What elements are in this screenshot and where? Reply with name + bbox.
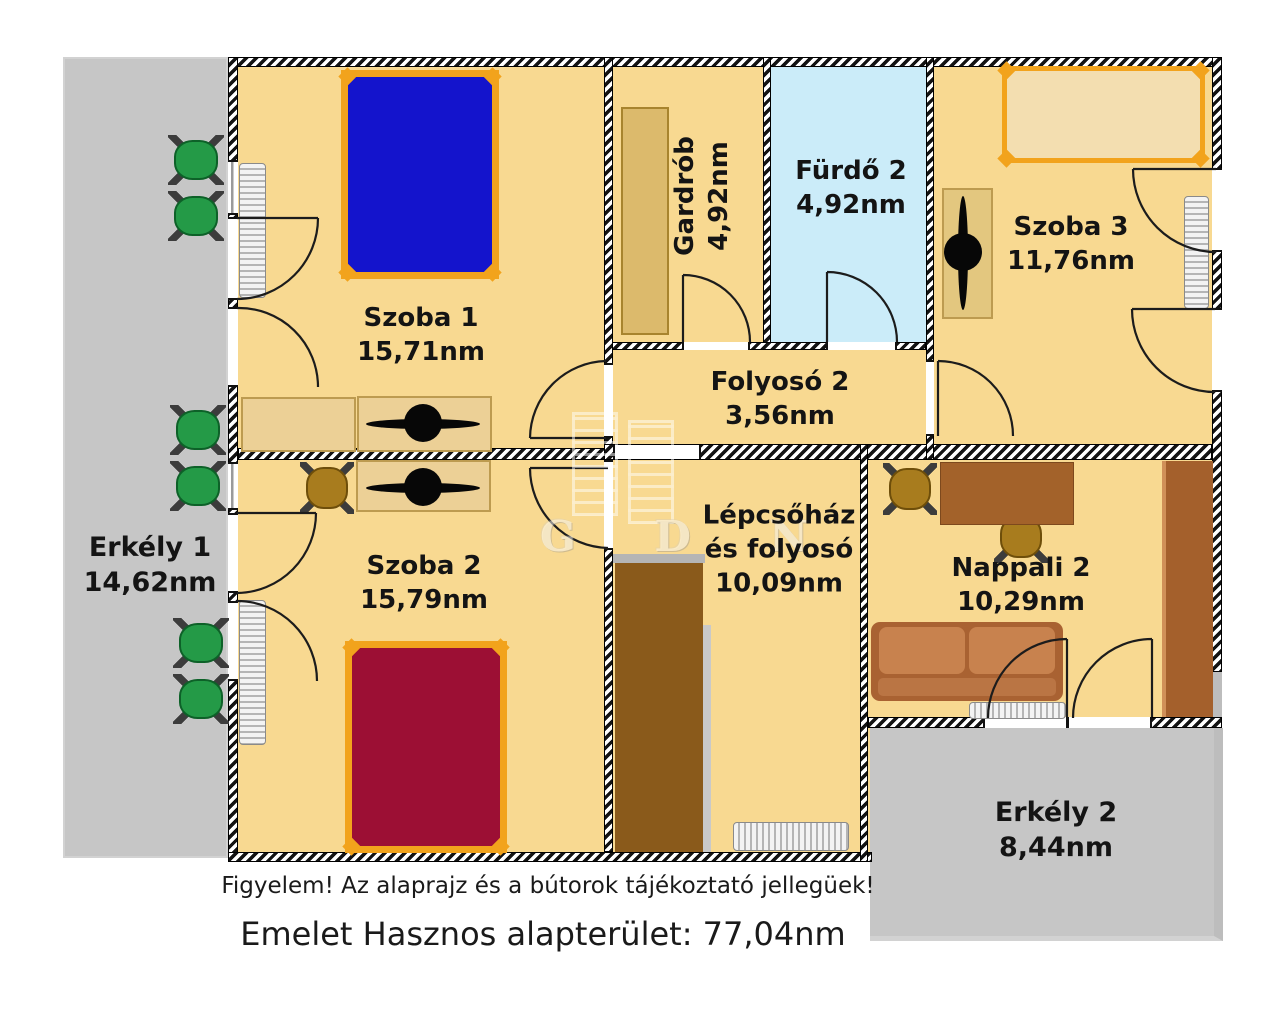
wardrobe-cabinet-gardrob [621,107,669,335]
room-label-lepcsohaz: Lépcsőház és folyosó 10,09nm [703,499,856,600]
room-area: 4,92nm [795,189,906,223]
desk-szoba1-left [241,397,356,452]
wall-lepcso-nappali [860,444,868,862]
balcony-chair-icon-5 [173,618,229,668]
room-name: Nappali 2 [951,552,1090,586]
balcony-chair-icon-2 [168,191,224,241]
room-label-erkely1: Erkély 1 14,62nm [84,530,217,600]
door-opening-szoba2-balcony-a [228,513,238,593]
chair-icon-nappali-a [883,463,937,515]
bed-szoba3 [1002,66,1205,163]
passage-folyoso-lepcso [613,445,701,459]
sofa-seat-front [878,678,1056,696]
wall-gardrob-furdo [763,57,771,350]
door-opening-gardrob [682,342,750,350]
staircase [615,562,703,852]
room-area: 11,76nm [1007,245,1135,279]
room-area: 3,56nm [711,400,850,434]
room-name: Erkély 1 [84,530,217,565]
sofa [871,622,1063,701]
room-name: Szoba 1 [357,302,485,336]
room-area: 10,09nm [703,567,856,601]
room-label-szoba1: Szoba 1 15,71nm [357,302,485,370]
door-opening-szoba3 [926,360,934,436]
room-label-folyoso2: Folyosó 2 3,56nm [711,366,850,434]
room-name: Fürdő 2 [795,155,906,189]
balcony-chair-icon-4 [170,461,226,511]
door-opening-szoba2-balcony-b [228,601,238,681]
room-label-szoba2: Szoba 2 15,79nm [360,550,488,618]
room-label-gardrob: Gardrób 4,92nm [669,136,737,256]
door-opening-szoba1-balcony-b [228,307,238,387]
room-label-szoba3: Szoba 3 11,76nm [1007,211,1135,279]
room-name: Szoba 2 [360,550,488,584]
window-szoba2 [228,462,238,510]
room-area: 8,44nm [995,830,1117,865]
total-area-text: Emelet Hasznos alapterület: 77,04nm [240,915,845,953]
room-name-2: és folyosó [703,533,856,567]
radiator-icon-szoba2 [239,600,266,745]
office-chair-seat-szoba3 [944,233,982,271]
room-area: 15,79nm [360,584,488,618]
balcony-chair-icon-6 [173,674,229,724]
room-name: Erkély 2 [995,795,1117,830]
window-szoba1 [228,160,238,215]
door-opening-szoba1-folyoso [604,363,613,438]
radiator-icon-szoba1 [239,163,266,298]
radiator-icon-nappali [969,702,1066,719]
room-area: 4,92nm [703,136,737,256]
wall-outer-bottom [228,852,872,862]
door-opening-szoba2-lepcso [604,460,613,550]
room-label-furdo2: Fürdő 2 4,92nm [795,155,906,223]
bed-szoba1 [341,70,499,279]
radiator-icon-lepcsohaz [733,822,849,851]
room-area: 10,29nm [951,586,1090,620]
radiator-icon-szoba3 [1184,196,1209,309]
office-chair-seat-szoba1 [404,404,442,442]
room-area: 15,71nm [357,336,485,370]
room-name: Gardrób [669,136,703,256]
door-opening-szoba1-balcony-a [228,217,238,300]
room-label-erkely2: Erkély 2 8,44nm [995,795,1117,865]
disclaimer-text: Figyelem! Az alaprajz és a bútorok tájék… [221,873,874,899]
office-chair-seat-szoba2 [404,468,442,506]
chair-icon-szoba2 [300,462,354,514]
room-label-nappali2: Nappali 2 10,29nm [951,552,1090,620]
desk-nappali [940,462,1074,525]
sofa-cushion-right [969,627,1055,674]
room-name: Lépcsőház [703,499,856,533]
room-area: 14,62nm [84,565,217,600]
balcony-chair-icon-1 [168,135,224,185]
staircase-top-edge [613,554,705,563]
door-opening-furdo [826,342,897,350]
staircase-right-edge [703,625,711,852]
bed-szoba2 [345,641,507,853]
room-name: Szoba 3 [1007,211,1135,245]
floor-plan: G D N Szoba 1 15,71nm Szoba 2 15,79nm Sz… [0,0,1280,1010]
window-szoba3-b [1212,308,1222,392]
door-mullion-nappali [1066,717,1069,728]
balcony-chair-icon-3 [170,405,226,455]
window-szoba3-a [1212,168,1222,252]
wardrobe-nappali [1162,461,1213,717]
sofa-cushion-left [879,627,965,674]
room-name: Folyosó 2 [711,366,850,400]
